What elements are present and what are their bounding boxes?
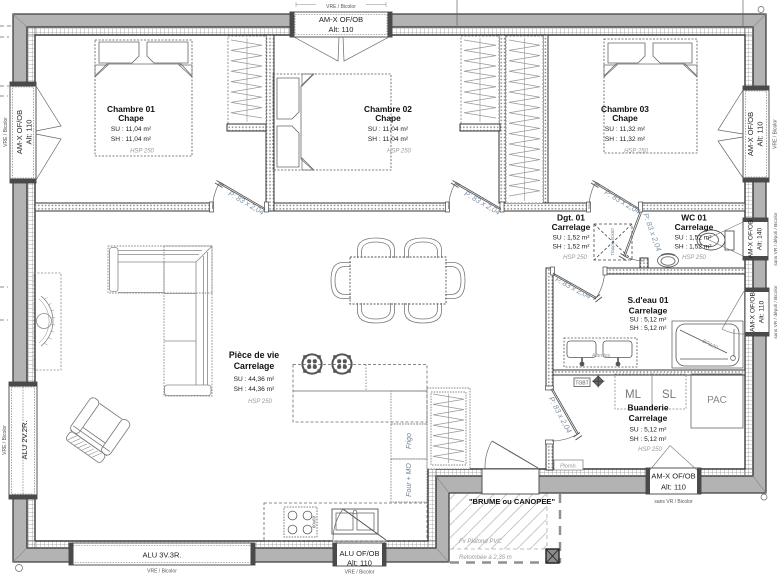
- svg-text:Alt: 110: Alt: 110: [24, 120, 33, 145]
- svg-text:AM-X OF/OB: AM-X OF/OB: [651, 472, 695, 481]
- svg-text:Alt: 110: Alt: 110: [755, 122, 764, 147]
- svg-text:VRE / Bicolor: VRE / Bicolor: [147, 569, 177, 575]
- svg-text:Carrelage: Carrelage: [552, 222, 591, 232]
- svg-text:ALU 2V.2R.: ALU 2V.2R.: [20, 421, 29, 460]
- svg-text:VRE / Bicolor: VRE / Bicolor: [2, 425, 8, 455]
- svg-text:Carrelage: Carrelage: [234, 361, 275, 371]
- svg-text:SU : 1,52 m²: SU : 1,52 m²: [674, 235, 712, 242]
- svg-text:HSP 250: HSP 250: [624, 149, 648, 155]
- svg-text:SH : 5,12 m²: SH : 5,12 m²: [629, 325, 667, 332]
- svg-text:Carrelage: Carrelage: [629, 306, 668, 316]
- svg-text:Retombée à 2,35 m: Retombée à 2,35 m: [459, 555, 512, 561]
- svg-text:SH : 1,52 m²: SH : 1,52 m²: [552, 244, 590, 251]
- svg-text:AM-X OF/OB: AM-X OF/OB: [15, 110, 24, 154]
- svg-text:SU : 44,36 m²: SU : 44,36 m²: [234, 376, 275, 383]
- svg-text:HSP 250: HSP 250: [387, 149, 411, 155]
- svg-text:Pièce de vie: Pièce de vie: [229, 350, 279, 360]
- svg-text:HSP 250: HSP 250: [563, 255, 587, 261]
- svg-text:WC 01: WC 01: [681, 213, 707, 223]
- svg-text:VRE / Bicolor: VRE / Bicolor: [345, 570, 375, 576]
- svg-text:Chape: Chape: [375, 113, 401, 123]
- svg-text:"BRUME ou CANOPEE": "BRUME ou CANOPEE": [469, 497, 555, 506]
- svg-text:ALU OF/OB: ALU OF/OB: [339, 549, 379, 558]
- svg-text:Alt: 110: Alt: 110: [661, 483, 686, 492]
- svg-text:SL: SL: [662, 389, 677, 401]
- svg-text:Chape: Chape: [612, 113, 638, 123]
- svg-text:AM-X OF/OB: AM-X OF/OB: [749, 292, 756, 332]
- svg-text:SH : 11,32 m²: SH : 11,32 m²: [605, 136, 646, 143]
- svg-text:60x60: 60x60: [312, 515, 317, 528]
- svg-text:sans VR / Bicolor: sans VR / Bicolor: [654, 499, 693, 505]
- svg-text:Chape: Chape: [118, 113, 144, 123]
- svg-text:VRE / Bicolor: VRE / Bicolor: [326, 4, 356, 10]
- svg-text:AM-X OF/OB: AM-X OF/OB: [747, 219, 754, 258]
- svg-text:Alt: 110: Alt: 110: [347, 559, 372, 568]
- svg-text:SU : 11,04 m²: SU : 11,04 m²: [111, 126, 152, 133]
- svg-text:PAC: PAC: [707, 395, 727, 406]
- svg-text:SU : 5,12 m²: SU : 5,12 m²: [629, 317, 667, 324]
- svg-text:HSP 250: HSP 250: [682, 255, 706, 261]
- svg-text:S.d'eau 01: S.d'eau 01: [627, 295, 668, 305]
- svg-text:SU : 5,12 m²: SU : 5,12 m²: [629, 427, 667, 434]
- svg-text:Four + MO: Four + MO: [406, 463, 413, 497]
- svg-text:VRE / Bicolor: VRE / Bicolor: [772, 119, 778, 149]
- svg-text:Alt: 110: Alt: 110: [758, 301, 765, 324]
- svg-text:AM-X OF/OB: AM-X OF/OB: [746, 112, 755, 156]
- svg-text:Frigo: Frigo: [406, 433, 413, 449]
- svg-text:Buanderie: Buanderie: [628, 403, 669, 413]
- svg-text:VRE / Bicolor: VRE / Bicolor: [3, 117, 9, 147]
- svg-text:Carrelage: Carrelage: [675, 222, 714, 232]
- svg-text:SH : 5,12 m²: SH : 5,12 m²: [629, 436, 667, 443]
- svg-text:SH : 1,52 m²: SH : 1,52 m²: [674, 244, 712, 251]
- svg-text:sans VR / dépoli / Bicolor: sans VR / dépoli / Bicolor: [773, 285, 779, 339]
- svg-text:SH : 44,36 m²: SH : 44,36 m²: [234, 386, 275, 393]
- svg-text:SH : 11,04 m²: SH : 11,04 m²: [368, 136, 409, 143]
- svg-text:ML: ML: [625, 389, 642, 401]
- svg-text:SU : 1,52 m²: SU : 1,52 m²: [552, 235, 590, 242]
- svg-text:HSP 250: HSP 250: [248, 399, 272, 405]
- svg-text:Carrelage: Carrelage: [629, 413, 668, 423]
- svg-text:Trappe 60x60: Trappe 60x60: [610, 228, 615, 256]
- svg-text:SU : 11,04 m²: SU : 11,04 m²: [368, 126, 409, 133]
- svg-text:SH : 11,04 m²: SH : 11,04 m²: [111, 136, 152, 143]
- svg-text:HSP 250: HSP 250: [638, 447, 662, 453]
- svg-text:Attentes: Attentes: [591, 353, 611, 359]
- svg-text:Alt: 110: Alt: 110: [329, 25, 354, 34]
- svg-text:ALU 3V.3R.: ALU 3V.3R.: [143, 551, 182, 560]
- svg-text:HSP 250: HSP 250: [130, 149, 154, 155]
- svg-text:Dgt. 01: Dgt. 01: [557, 213, 585, 223]
- svg-text:TGBT: TGBT: [575, 381, 588, 387]
- svg-text:Fx Plafond PVC: Fx Plafond PVC: [459, 539, 502, 545]
- svg-text:SU : 11,32 m²: SU : 11,32 m²: [605, 126, 646, 133]
- svg-text:sans VR / dépoli / Bicolor: sans VR / dépoli / Bicolor: [773, 212, 779, 266]
- svg-text:Alt: 140: Alt: 140: [756, 227, 763, 250]
- svg-text:Plomb.: Plomb.: [560, 464, 577, 470]
- svg-text:AM-X OF/OB: AM-X OF/OB: [319, 15, 363, 24]
